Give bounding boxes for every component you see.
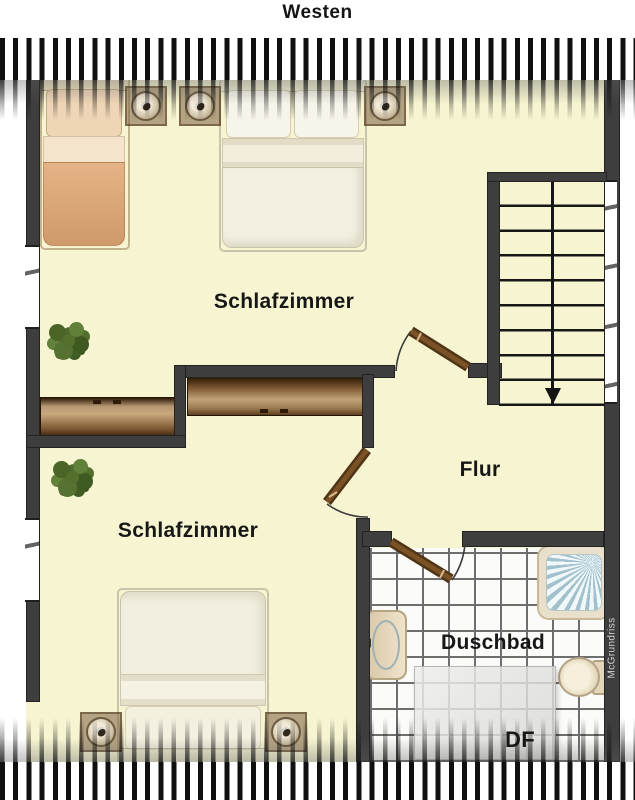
wardrobe-handle [93,400,101,404]
room-label-bathroom: Duschbad [441,631,545,655]
wall-left [26,56,40,702]
staircase-divider [551,182,554,406]
room-label-hallway: Flur [460,458,501,482]
wall-lower-left [26,435,186,448]
compass-label-westen: Westen [0,2,635,24]
window-left-upper [25,245,39,329]
wall-bath-top-right [462,531,604,547]
bed-duvet [222,167,364,248]
toilet-bowl [558,657,600,697]
wardrobe-left [40,397,176,437]
watermark-mcgrundriss: McGrundriss [607,617,618,678]
roof-shadow-bottom [0,738,635,762]
floorplan-canvas: Westen [0,0,635,800]
sink-icon [365,610,407,680]
bed-sheet-band [43,136,125,164]
roof-window-label: DF [505,727,535,753]
wardrobe-handle [280,409,288,413]
bed-blanket [43,162,125,246]
wardrobe-handle [113,400,121,404]
wall-stairs-left [487,172,500,405]
roof-hatch-top [0,38,635,80]
roof-shadow-top [0,80,635,104]
wall-bath-left [356,518,370,762]
shower-tray [546,554,602,611]
double-bed-top [219,78,367,252]
plant-icon [66,471,79,484]
room-label-bedroom-bottom: Schlafzimmer [118,519,258,543]
wall-bath-top-left [362,531,392,547]
bed-sheet-band [222,138,364,169]
shower-icon [537,545,611,620]
wardrobe-alcove [187,377,364,416]
wall-stairs-top [487,172,607,182]
bed-duvet [120,591,266,676]
staircase [499,182,605,406]
wardrobe-handle [260,409,268,413]
bed-sheet-band [120,674,266,706]
window-right-stairwell [605,180,617,404]
roof-hatch-bottom [0,762,635,800]
sink-basin [372,620,400,670]
wall-alcove-right [362,374,374,448]
room-label-bedroom-top: Schlafzimmer [214,290,354,314]
plant-icon [62,334,75,347]
window-left-lower [25,518,39,602]
